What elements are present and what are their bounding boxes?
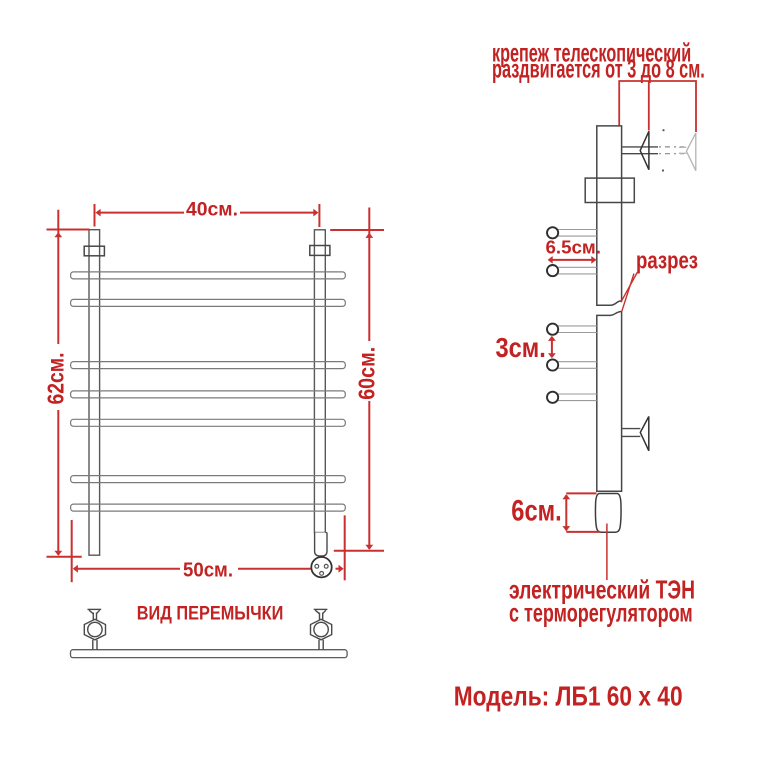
svg-text:разрез: разрез	[636, 248, 698, 275]
svg-text:6.5см.: 6.5см.	[546, 237, 602, 258]
svg-text:Модель: ЛБ1 60 x 40: Модель: ЛБ1 60 x 40	[454, 681, 683, 712]
svg-text:40см.: 40см.	[186, 200, 238, 221]
svg-text:3см.: 3см.	[496, 332, 546, 363]
svg-text:раздвигается от 3 до 8 см.: раздвигается от 3 до 8 см.	[492, 54, 705, 84]
svg-text:6см.: 6см.	[511, 494, 561, 527]
svg-text:62см.: 62см.	[42, 353, 68, 405]
svg-text:50см.: 50см.	[183, 560, 233, 582]
svg-text:60см.: 60см.	[354, 347, 380, 400]
svg-text:ВИД ПЕРЕМЫЧКИ: ВИД ПЕРЕМЫЧКИ	[137, 604, 283, 625]
svg-text:с терморегулятором: с терморегулятором	[509, 597, 693, 627]
